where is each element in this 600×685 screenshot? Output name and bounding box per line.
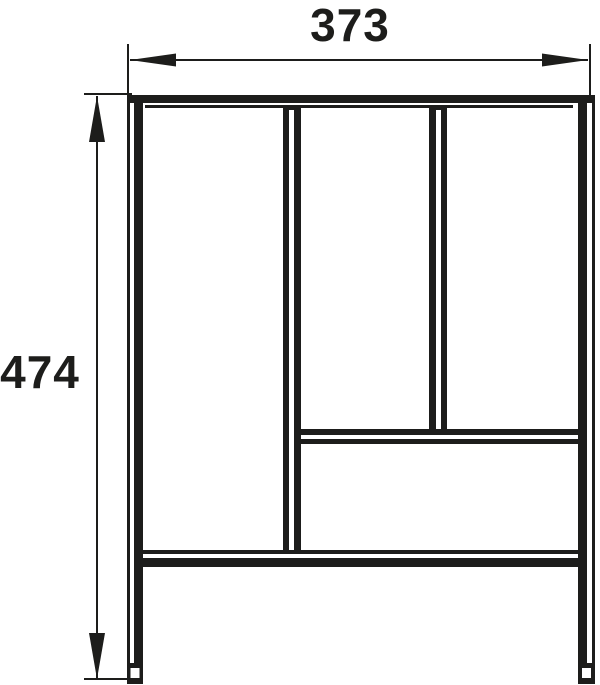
technical-drawing-canvas: 373 474 bbox=[0, 0, 600, 685]
frame-right-leg-outer bbox=[592, 95, 595, 665]
arrow-right-icon bbox=[542, 54, 588, 67]
bottom-rail-bottom-line bbox=[134, 558, 587, 567]
frame-top-inner-line bbox=[145, 105, 573, 108]
right-foot-hole bbox=[582, 668, 591, 678]
arrow-left-icon bbox=[130, 54, 176, 67]
frame-right-leg-inner bbox=[578, 103, 587, 665]
mid-divider-bottom-line bbox=[301, 439, 587, 444]
dimension-width: 373 bbox=[128, 0, 590, 96]
mid-divider-top-line bbox=[294, 429, 587, 435]
dimension-height-label: 474 bbox=[0, 346, 80, 398]
frame-left-leg-inner bbox=[134, 103, 143, 665]
divider-1-left-line bbox=[283, 106, 289, 552]
frame-left-leg-outer bbox=[127, 95, 130, 665]
frame-top-rail bbox=[130, 95, 578, 103]
divider-1-right-line bbox=[294, 106, 301, 552]
frame-drawing bbox=[127, 95, 595, 684]
divider-1-top-cap bbox=[283, 106, 301, 110]
divider-2-top-cap bbox=[429, 106, 447, 110]
left-foot-hole bbox=[131, 668, 140, 678]
frame-dimension-drawing: 373 474 bbox=[0, 0, 600, 685]
arrow-up-icon bbox=[89, 96, 105, 142]
mid-divider-left-cap bbox=[294, 429, 301, 444]
dimension-width-label: 373 bbox=[310, 0, 390, 51]
divider-2-left-line bbox=[429, 106, 436, 432]
arrow-down-icon bbox=[89, 633, 105, 679]
divider-2-right-line bbox=[441, 106, 447, 432]
bottom-rail-top-line bbox=[134, 550, 587, 554]
dimension-height: 474 bbox=[0, 94, 132, 679]
